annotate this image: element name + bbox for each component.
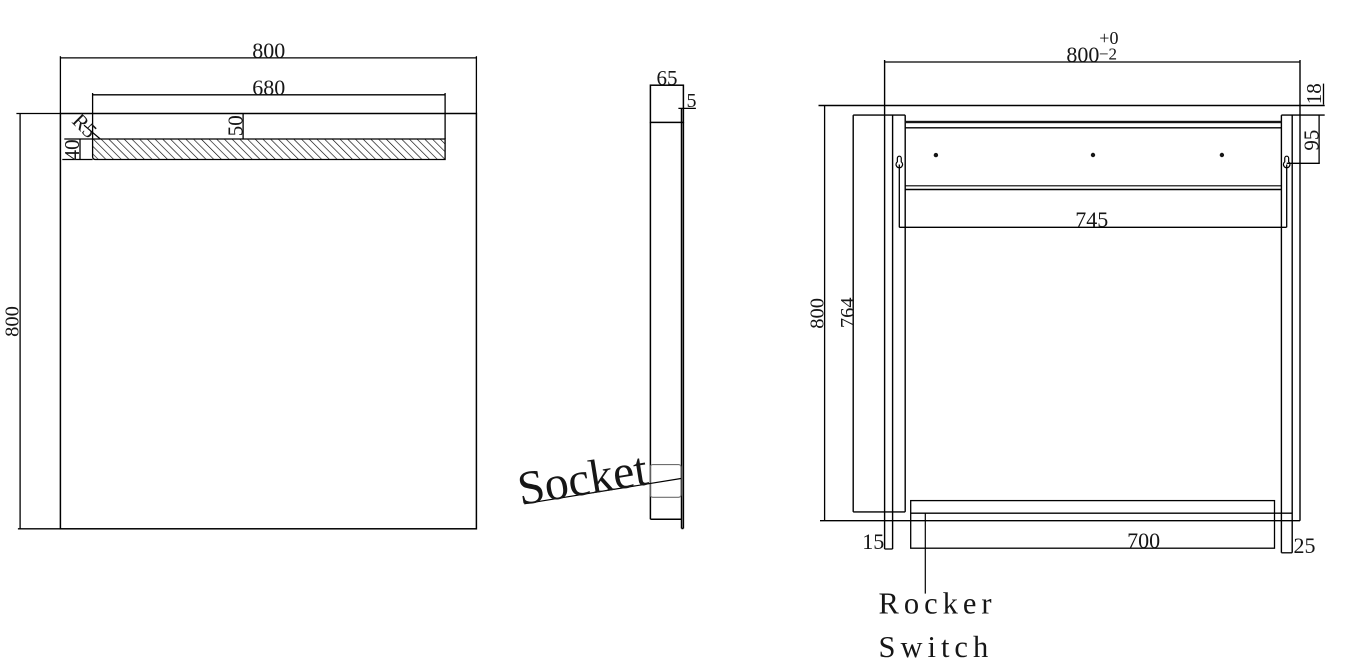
svg-text:95: 95 bbox=[1300, 130, 1324, 151]
svg-text:65: 65 bbox=[657, 66, 678, 90]
svg-text:764: 764 bbox=[837, 297, 859, 328]
svg-text:18: 18 bbox=[1302, 83, 1326, 104]
svg-text:Switch: Switch bbox=[879, 630, 994, 664]
svg-text:Rocker: Rocker bbox=[879, 587, 997, 621]
svg-text:800: 800 bbox=[807, 298, 829, 329]
svg-text:15: 15 bbox=[862, 529, 884, 554]
svg-text:25: 25 bbox=[1294, 533, 1316, 558]
svg-text:+0: +0 bbox=[1099, 28, 1118, 48]
svg-text:800: 800 bbox=[2, 306, 24, 337]
svg-text:5: 5 bbox=[687, 90, 697, 112]
svg-text:680: 680 bbox=[252, 75, 285, 100]
svg-text:50: 50 bbox=[223, 115, 247, 136]
svg-text:700: 700 bbox=[1127, 528, 1160, 553]
svg-text:800: 800 bbox=[1066, 42, 1099, 67]
svg-text:745: 745 bbox=[1075, 207, 1108, 232]
svg-text:40: 40 bbox=[60, 139, 84, 160]
svg-text:800: 800 bbox=[252, 38, 285, 63]
